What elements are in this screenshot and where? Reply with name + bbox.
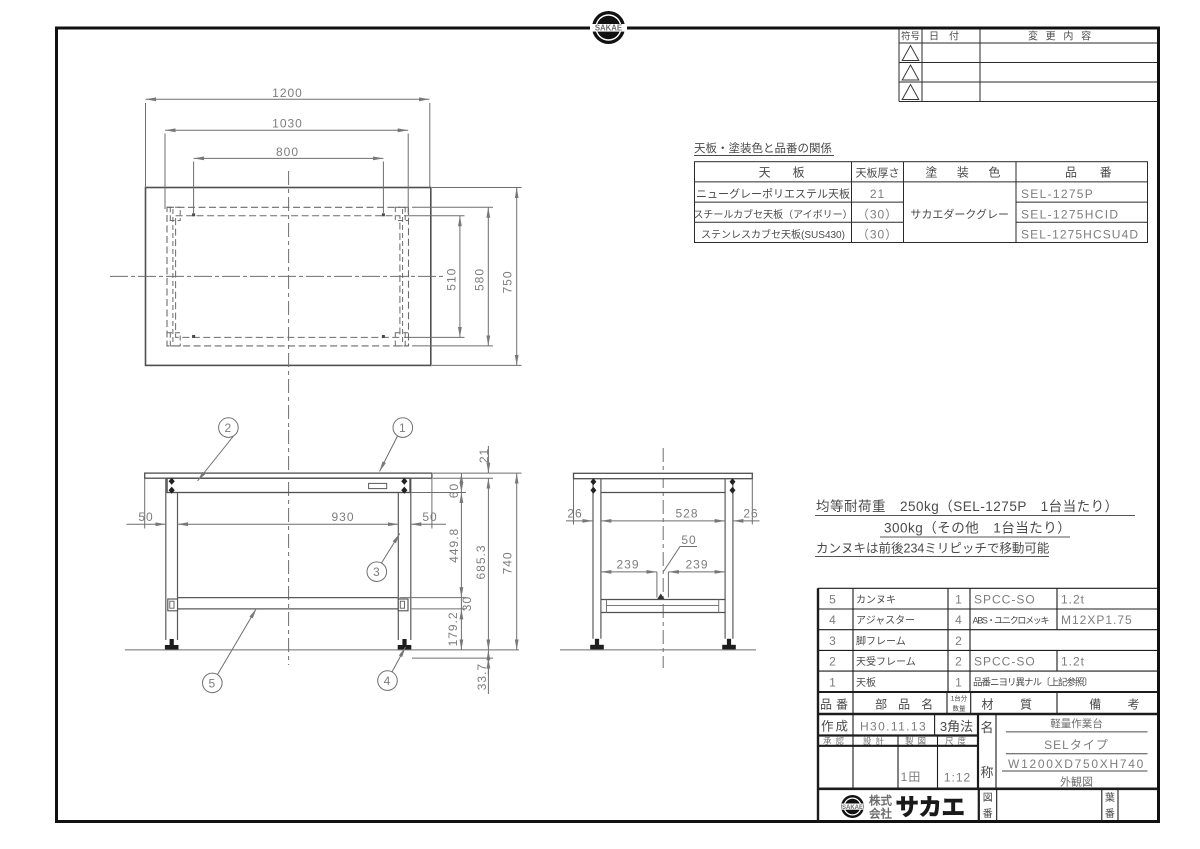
- svg-text:1: 1: [829, 675, 837, 689]
- svg-text:1.2t: 1.2t: [1061, 655, 1085, 669]
- svg-text:50: 50: [681, 533, 696, 547]
- svg-text:1台分: 1台分: [951, 694, 968, 703]
- svg-text:SELタイプ: SELタイプ: [1044, 738, 1109, 752]
- svg-text:50: 50: [138, 510, 153, 524]
- svg-text:アジャスター: アジャスター: [856, 615, 915, 627]
- svg-text:SAKAE: SAKAE: [842, 805, 863, 811]
- svg-text:スチールカブセ天板（アイボリー）: スチールカブセ天板（アイボリー）: [693, 208, 852, 221]
- svg-text:1.2t: 1.2t: [1061, 593, 1085, 607]
- svg-text:天板: 天板: [759, 166, 827, 180]
- svg-text:2: 2: [225, 421, 233, 435]
- svg-text:528: 528: [675, 507, 698, 521]
- svg-text:均等耐荷重 250kg（SEL-1275P 1台当たり）: 均等耐荷重 250kg（SEL-1275P 1台当たり）: [816, 498, 1119, 514]
- svg-text:日付: 日付: [929, 30, 969, 43]
- svg-text:外観図: 外観図: [1060, 775, 1093, 789]
- svg-text:M12XP1.75: M12XP1.75: [1061, 613, 1133, 627]
- svg-text:4: 4: [955, 613, 963, 627]
- svg-text:カンヌキ: カンヌキ: [856, 594, 896, 606]
- svg-text:SEL-1275HCSU4D: SEL-1275HCSU4D: [1021, 228, 1139, 242]
- svg-text:脚フレーム: 脚フレーム: [856, 634, 906, 647]
- svg-text:21: 21: [870, 187, 885, 201]
- svg-text:SPCC-SO: SPCC-SO: [974, 655, 1036, 669]
- svg-text:1: 1: [955, 675, 963, 689]
- svg-text:50: 50: [422, 510, 437, 524]
- svg-text:W1200XD750XH740: W1200XD750XH740: [1008, 757, 1145, 771]
- svg-text:数量: 数量: [953, 704, 967, 713]
- svg-text:239: 239: [685, 558, 708, 572]
- svg-text:会社: 会社: [868, 807, 892, 821]
- svg-text:製図: 製図: [905, 736, 930, 746]
- svg-text:26: 26: [567, 507, 582, 521]
- svg-text:3: 3: [373, 565, 381, 579]
- svg-text:685.3: 685.3: [474, 544, 488, 579]
- svg-text:1030: 1030: [272, 117, 303, 131]
- svg-text:天板厚さ: 天板厚さ: [856, 166, 900, 180]
- svg-text:3角法: 3角法: [940, 719, 973, 734]
- svg-text:21: 21: [477, 448, 491, 463]
- svg-text:26: 26: [743, 507, 758, 521]
- svg-text:SEL-1275P: SEL-1275P: [1021, 187, 1094, 201]
- svg-text:60: 60: [447, 483, 461, 498]
- svg-text:2: 2: [955, 655, 963, 669]
- svg-text:1田: 1田: [901, 770, 922, 784]
- svg-text:天板: 天板: [856, 676, 876, 689]
- svg-text:510: 510: [444, 268, 458, 291]
- svg-text:番: 番: [1105, 808, 1115, 820]
- svg-text:179.2: 179.2: [446, 611, 460, 646]
- svg-text:称: 称: [980, 765, 993, 780]
- svg-text:株式: 株式: [869, 794, 892, 808]
- svg-text:材質: 材質: [981, 697, 1058, 712]
- svg-text:品番ニヨリ異ナル〔上記参照〕: 品番ニヨリ異ナル〔上記参照〕: [973, 677, 1092, 689]
- svg-text:ステンレスカブセ天板(SUS430): ステンレスカブセ天板(SUS430): [701, 228, 845, 241]
- svg-text:H30.11.13: H30.11.13: [860, 720, 927, 734]
- svg-text:300kg（その他 1台当たり）: 300kg（その他 1台当たり）: [884, 521, 1071, 536]
- svg-text:天板・塗装色と品番の関係: 天板・塗装色と品番の関係: [694, 141, 832, 155]
- svg-text:2: 2: [829, 655, 837, 669]
- svg-text:サカエダークグレー: サカエダークグレー: [910, 207, 1009, 221]
- svg-text:580: 580: [473, 268, 487, 291]
- svg-text:品番: 品番: [820, 698, 852, 712]
- svg-text:1200: 1200: [272, 86, 303, 100]
- svg-text:符号: 符号: [901, 31, 920, 43]
- svg-text:天受フレーム: 天受フレーム: [856, 656, 916, 668]
- svg-text:4: 4: [829, 613, 837, 627]
- svg-text:5: 5: [829, 593, 837, 607]
- svg-text:800: 800: [276, 145, 299, 159]
- svg-text:ニューグレーポリエステル天板: ニューグレーポリエステル天板: [696, 187, 850, 201]
- svg-text:740: 740: [500, 551, 514, 574]
- svg-text:3: 3: [829, 634, 837, 648]
- svg-text:品番: 品番: [1065, 166, 1134, 180]
- svg-text:（30）: （30）: [857, 228, 898, 242]
- svg-text:SEL-1275HCID: SEL-1275HCID: [1021, 208, 1119, 222]
- svg-text:ABS・ユニクロメッキ: ABS・ユニクロメッキ: [973, 616, 1050, 626]
- svg-text:設計: 設計: [863, 736, 888, 746]
- svg-text:239: 239: [616, 558, 639, 572]
- svg-text:備考: 備考: [1089, 697, 1166, 712]
- svg-text:449.8: 449.8: [447, 528, 461, 563]
- svg-text:750: 750: [501, 270, 515, 293]
- svg-text:（30）: （30）: [857, 208, 898, 222]
- svg-text:塗装色: 塗装色: [925, 165, 1020, 180]
- svg-text:サカエ: サカエ: [896, 795, 965, 820]
- svg-text:1:12: 1:12: [944, 771, 971, 785]
- svg-text:尺度: 尺度: [945, 736, 970, 746]
- svg-text:1: 1: [399, 421, 407, 435]
- svg-text:番: 番: [983, 808, 993, 820]
- svg-text:図: 図: [983, 792, 993, 804]
- svg-text:33.7: 33.7: [475, 663, 489, 690]
- svg-text:2: 2: [955, 634, 963, 648]
- svg-text:カンヌキは前後234ミリピッチで移動可能: カンヌキは前後234ミリピッチで移動可能: [816, 541, 1050, 556]
- svg-text:変更内容: 変更内容: [1028, 30, 1099, 43]
- svg-text:作成: 作成: [821, 720, 850, 734]
- svg-text:軽量作業台: 軽量作業台: [1050, 717, 1103, 730]
- svg-text:名: 名: [980, 720, 993, 735]
- svg-text:承認: 承認: [823, 736, 848, 746]
- svg-text:葉: 葉: [1105, 791, 1115, 804]
- svg-text:4: 4: [384, 674, 392, 688]
- svg-text:5: 5: [208, 676, 216, 690]
- svg-text:SAKAE: SAKAE: [595, 24, 622, 33]
- svg-text:SPCC-SO: SPCC-SO: [974, 593, 1036, 607]
- svg-text:30: 30: [460, 596, 474, 611]
- svg-text:部品名: 部品名: [875, 697, 944, 712]
- svg-text:930: 930: [331, 510, 354, 524]
- svg-text:1: 1: [955, 593, 963, 607]
